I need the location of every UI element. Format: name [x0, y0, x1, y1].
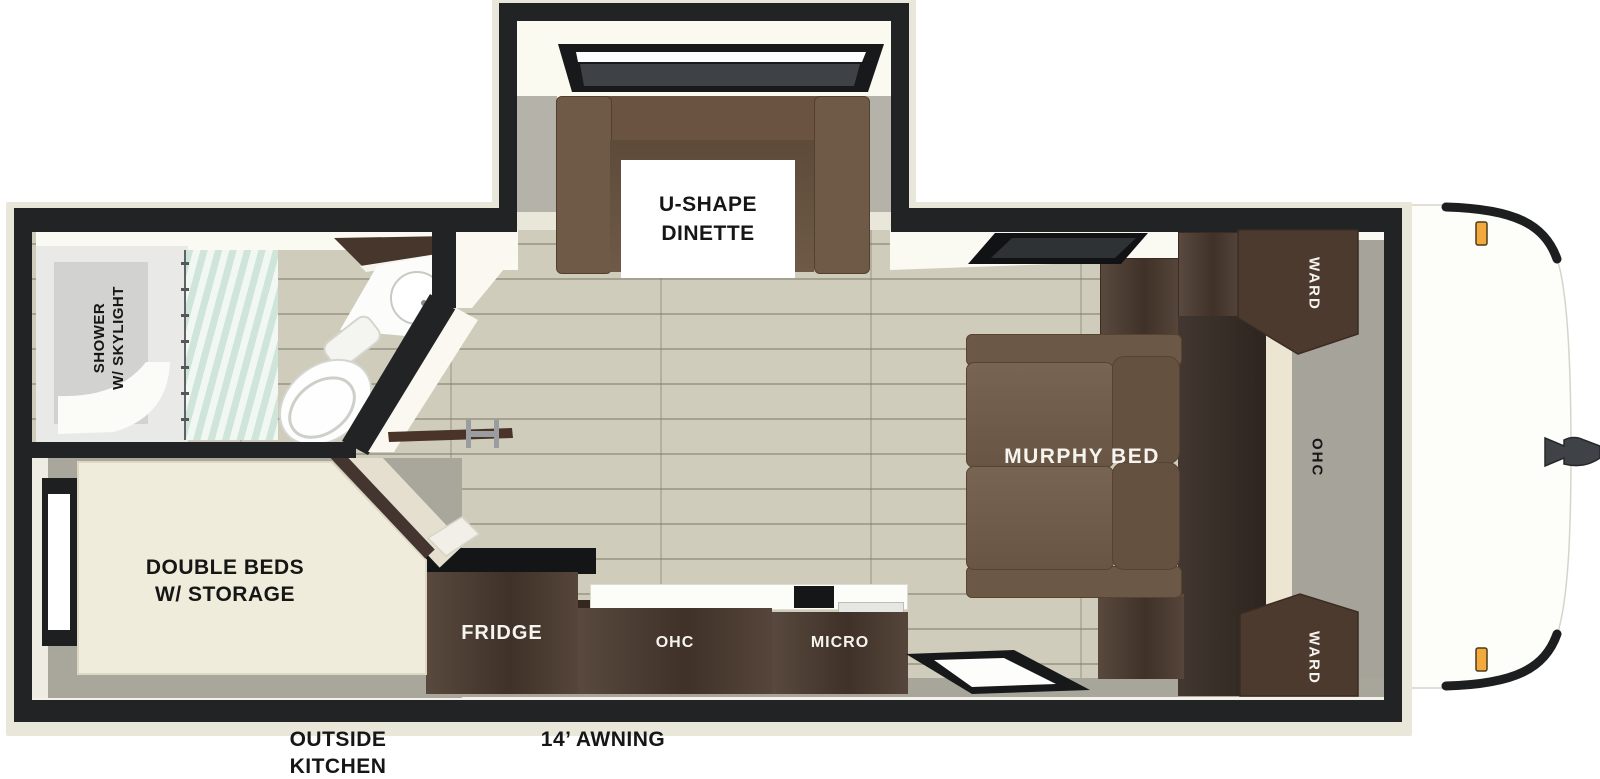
outside-kitchen-label-line1: OUTSIDE: [238, 726, 438, 753]
wardrobe-top-label: WARD: [1300, 236, 1328, 332]
front-ohc-label: OHC: [1304, 418, 1330, 498]
dinette-label: U-SHAPE DINETTE: [621, 160, 795, 278]
bathroom-right-wall: [432, 208, 456, 308]
slideout-window-pane-top: [576, 52, 866, 62]
double-beds-label-line1: DOUBLE BEDS: [90, 554, 360, 581]
floorplan-canvas: U-SHAPE DINETTE SHOWER W/ SKYLIGHT DOUBL…: [0, 0, 1600, 779]
bathroom-wall-face-a: [456, 232, 518, 308]
dinette-label-line1: U-SHAPE: [659, 190, 757, 219]
fridge-label: FRIDGE: [426, 622, 578, 645]
kitchen-ohc-label: OHC: [578, 634, 772, 652]
wardrobe-bottom-label: WARD: [1300, 616, 1328, 700]
micro-label: MICRO: [772, 634, 908, 652]
door-handle: [466, 420, 499, 448]
outside-kitchen-label: OUTSIDE KITCHEN: [238, 726, 438, 779]
shower-label: SHOWER W/ SKYLIGHT: [90, 253, 134, 423]
slideout-window-pane-bottom: [580, 64, 860, 86]
shower-label-line2: W/ SKYLIGHT: [109, 253, 128, 423]
murphy-bed-label: MURPHY BED: [972, 445, 1192, 469]
detail-overlay: [0, 0, 1600, 779]
wardrobe-bottom: [1240, 594, 1358, 696]
curtain-hooks: [181, 262, 189, 421]
awning-label: 14’ AWNING: [498, 728, 708, 752]
double-beds-label: DOUBLE BEDS W/ STORAGE: [90, 554, 360, 608]
dinette-label-line2: DINETTE: [661, 219, 754, 248]
outside-kitchen-label-line2: KITCHEN: [238, 753, 438, 779]
roof-vent-inner: [991, 238, 1136, 258]
shower-label-line1: SHOWER: [90, 253, 109, 423]
bathroom-bottom-wall: [14, 442, 356, 458]
double-beds-label-line2: W/ STORAGE: [90, 581, 360, 608]
wardrobe-top: [1238, 230, 1358, 354]
